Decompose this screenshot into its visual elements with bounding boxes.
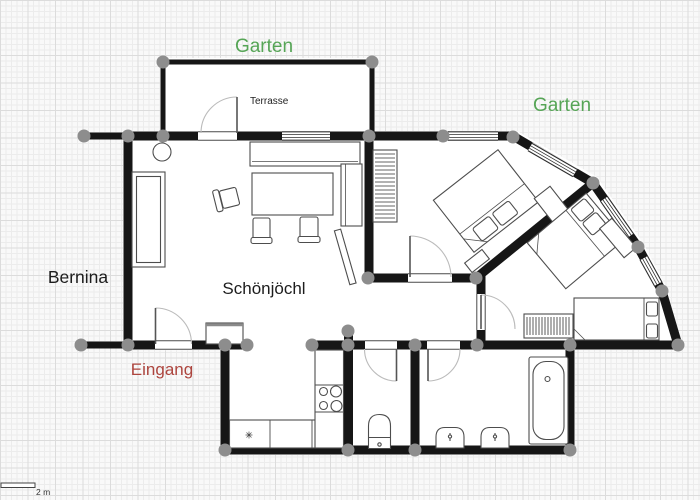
label-terrasse: Terrasse — [250, 96, 289, 107]
counter-outline — [315, 350, 344, 448]
burner — [331, 401, 342, 412]
sideboard-outline — [250, 142, 360, 166]
wall-node[interactable] — [241, 339, 254, 352]
wall-node[interactable] — [122, 339, 135, 352]
chair-back — [251, 238, 272, 244]
label-garten-top: Garten — [235, 36, 293, 57]
sink-icon[interactable] — [436, 428, 464, 449]
burner — [331, 386, 342, 397]
wall-node[interactable] — [78, 130, 91, 143]
chair-icon[interactable] — [298, 217, 320, 243]
toilet-icon[interactable] — [369, 415, 391, 449]
wall-node[interactable] — [366, 56, 379, 69]
bathtub-icon[interactable] — [529, 357, 568, 444]
sofa-icon[interactable] — [132, 172, 165, 267]
chair-icon[interactable] — [251, 218, 272, 244]
radiator-icon[interactable] — [524, 314, 573, 338]
wall-node[interactable] — [470, 272, 483, 285]
toilet-drain — [378, 443, 381, 446]
chair-back — [298, 237, 320, 243]
sink-icon[interactable] — [481, 428, 509, 449]
wall-node[interactable] — [157, 130, 170, 143]
sink-drain — [448, 435, 451, 438]
wall-node[interactable] — [437, 130, 450, 143]
wall-node[interactable] — [409, 339, 422, 352]
wall-node[interactable] — [672, 339, 685, 352]
dishwasher-icon — [246, 432, 253, 439]
chair-seat — [253, 218, 270, 239]
wall-node[interactable] — [342, 444, 355, 457]
wall-node[interactable] — [219, 339, 232, 352]
label-eingang: Eingang — [131, 360, 193, 379]
wall-node[interactable] — [471, 339, 484, 352]
wall-node[interactable] — [306, 339, 319, 352]
wall-node[interactable] — [122, 130, 135, 143]
stove-counter-icon[interactable] — [315, 350, 344, 448]
label-garten-right: Garten — [533, 95, 591, 116]
sink-drain — [493, 435, 496, 438]
chair-seat — [300, 217, 318, 238]
scale-bar-label: 2 m — [36, 487, 50, 497]
wall-node[interactable] — [75, 339, 88, 352]
scale-bar: 2 m — [1, 483, 50, 497]
wall-node[interactable] — [564, 339, 577, 352]
cabinet-icon[interactable] — [341, 164, 362, 226]
pillow — [647, 302, 658, 316]
label-bernina: Bernina — [48, 267, 109, 287]
wall-node[interactable] — [564, 444, 577, 457]
lamp-icon[interactable] — [153, 143, 171, 161]
scale-bar-rect — [1, 483, 35, 488]
floor-plan-canvas: Garten Garten Terrasse Bernina Schönjöch… — [0, 0, 700, 500]
burner — [320, 388, 328, 396]
wall-node[interactable] — [656, 285, 669, 298]
wall-node[interactable] — [342, 325, 355, 338]
dining-table-icon[interactable] — [252, 173, 333, 215]
burner — [320, 402, 328, 410]
pillow — [647, 324, 658, 338]
wall-node[interactable] — [363, 130, 376, 143]
label-apartment-name: Schönjöchl — [222, 279, 305, 298]
wall-node[interactable] — [157, 56, 170, 69]
floor-plan-drawing: Garten Garten Terrasse Bernina Schönjöch… — [0, 0, 700, 500]
wall-node[interactable] — [362, 272, 375, 285]
radiator-icon[interactable] — [373, 150, 397, 222]
single-bed-icon[interactable] — [574, 298, 659, 340]
radiator-hatch — [527, 317, 569, 335]
tub-outline — [529, 357, 568, 444]
wall-node[interactable] — [342, 339, 355, 352]
wall-node[interactable] — [632, 241, 645, 254]
wall-node[interactable] — [219, 444, 232, 457]
wall-node[interactable] — [587, 177, 600, 190]
cabinet-outline — [341, 164, 362, 226]
sideboard-icon[interactable] — [250, 142, 360, 166]
wall-node[interactable] — [409, 444, 422, 457]
wall-node[interactable] — [507, 131, 520, 144]
